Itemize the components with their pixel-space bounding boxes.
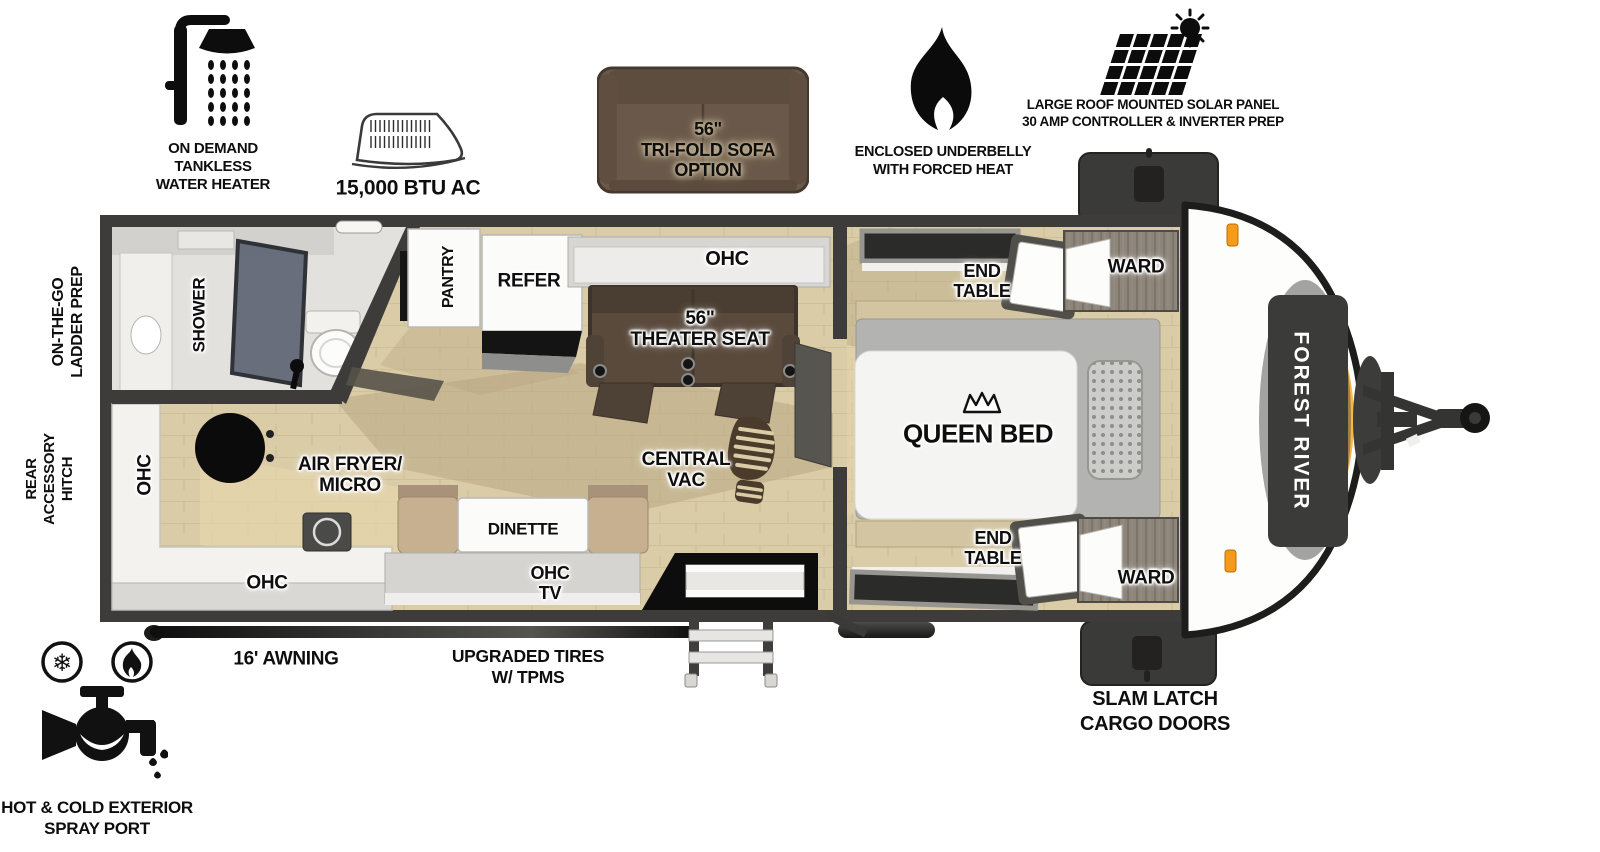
ac-unit-icon [345,105,475,175]
central-vac-label: CENTRAL VAC [642,450,731,492]
end-table-bottom-label: END TABLE [964,529,1021,569]
ohc-tv-label: OHC TV [530,564,569,604]
rv-floorplan-page: ON DEMAND TANKLESS WATER HEATER 15,000 B… [0,0,1600,852]
end-table-top-label: END TABLE [953,262,1010,302]
entry-steps [683,616,779,688]
crown-icon [960,391,1004,417]
marker-light-bottom [1225,550,1236,572]
faucet-shape [42,686,156,761]
ohc-top-label: OHC [705,248,749,270]
ac-label: 15,000 BTU AC [336,176,481,199]
awning-label: 16' AWNING [233,650,338,671]
refer-label: REFER [498,272,561,293]
theater-seat-label: 56" THEATER SEAT [630,309,769,351]
trifold-sofa-label: 56" TRI-FOLD SOFA OPTION [641,119,775,181]
ladder-prep-label: ON-THE-GO LADDER PREP [49,266,87,377]
tires-label: UPGRADED TIRES W/ TPMS [452,646,604,688]
water-heater-label: ON DEMAND TANKLESS WATER HEATER [156,140,270,194]
bedroom-door-panel [795,343,831,467]
awning-bar [150,626,695,638]
underbelly-label: ENCLOSED UNDERBELLY WITH FORCED HEAT [855,143,1032,179]
spray-port-label: HOT & COLD EXTERIOR SPRAY PORT [1,797,193,840]
shower-label: SHOWER [191,278,210,353]
dinette-label: DINETTE [488,521,559,540]
bedroom-wall [833,227,847,339]
solar-panel-icon [1090,6,1214,100]
front-cap [1155,190,1500,660]
flame-icon [905,25,977,135]
bedroom-window-bottom [852,572,1037,608]
rear-hitch-label: REAR ACCESSORY HITCH [23,433,77,525]
marker-light-top [1227,224,1238,246]
ohc-bottom-label: OHC [246,574,287,595]
air-fryer-label: AIR FRYER/ MICRO [298,455,402,497]
queen-bed-label: QUEEN BED [903,420,1053,449]
ohc-left-label: OHC [136,454,157,495]
bed-pillow [1088,361,1142,479]
shower-icon [165,15,260,127]
bedroom-window-top [862,231,1018,261]
spray-port-icon: ❄ [28,638,168,780]
brand-badge-label: FOREST RIVER [1289,331,1312,510]
pantry-label: PANTRY [440,246,458,308]
svg-text:❄: ❄ [52,649,72,677]
solar-label: LARGE ROOF MOUNTED SOLAR PANEL 30 AMP CO… [1022,97,1284,131]
cargo-doors-label: SLAM LATCH CARGO DOORS [1080,687,1230,737]
kitchen-sink [195,413,265,483]
